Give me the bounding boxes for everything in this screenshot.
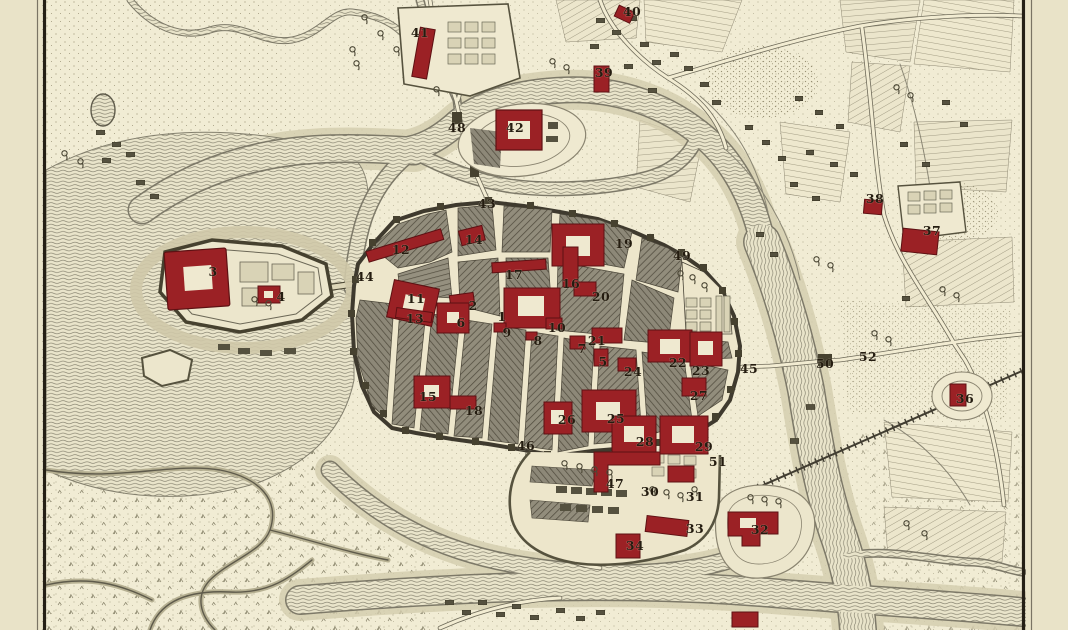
map-number-label: 22 [669, 355, 687, 370]
map-number-label: 15 [419, 389, 437, 404]
map-number-label: 26 [558, 412, 576, 427]
map-number-label: 30 [641, 484, 659, 499]
map-number-label: 29 [695, 439, 713, 454]
map-number-label: 33 [686, 521, 704, 536]
map-number-label: 38 [866, 191, 884, 206]
map-number-label: 18 [465, 403, 483, 418]
map-number-label: 39 [595, 65, 613, 80]
map-number-label: 5 [598, 354, 607, 369]
map-number-label: 19 [615, 236, 633, 251]
map-number-label: 11 [407, 291, 425, 306]
map-number-label: 10 [548, 320, 566, 335]
left-margin [0, 0, 42, 630]
map-number-label: 6 [456, 315, 465, 330]
map-number-label: 17 [505, 267, 523, 282]
historic-city-map: 1234567891011121314151617181920212223242… [0, 0, 1068, 630]
antique-map-page: 1234567891011121314151617181920212223242… [0, 0, 1068, 630]
map-number-label: 7 [577, 341, 586, 356]
map-number-label: 12 [392, 242, 410, 257]
map-number-label: 27 [690, 388, 708, 403]
map-number-label: 16 [562, 276, 580, 291]
map-number-label: 13 [406, 311, 424, 326]
map-number-label: 40 [623, 4, 641, 19]
map-number-label: 42 [506, 120, 524, 135]
map-number-label: 37 [923, 223, 941, 238]
map-number-label: 49 [673, 248, 691, 263]
map-number-label: 44 [356, 269, 374, 284]
map-number-label: 4 [276, 289, 285, 304]
map-number-label: 8 [533, 333, 542, 348]
map-number-label: 9 [502, 325, 511, 340]
map-number-label: 36 [956, 391, 974, 406]
map-number-label: 14 [465, 232, 483, 247]
map-number-label: 28 [636, 434, 654, 449]
right-margin [1026, 0, 1068, 630]
map-number-label: 25 [607, 411, 625, 426]
map-number-label: 51 [709, 454, 727, 469]
map-number-label: 47 [606, 476, 624, 491]
map-number-label: 21 [588, 333, 606, 348]
island-fort-3 [164, 248, 230, 310]
map-number-label: 23 [692, 363, 710, 378]
map-number-label: 48 [448, 120, 466, 135]
map-number-label: 45 [740, 361, 758, 376]
map-number-label: 32 [751, 522, 769, 537]
map-number-label: 43 [478, 196, 496, 211]
map-number-label: 50 [816, 356, 834, 371]
map-number-label: 2 [468, 298, 477, 313]
map-number-label: 46 [517, 438, 535, 453]
map-number-label: 20 [592, 289, 610, 304]
map-number-label: 1 [497, 309, 506, 324]
map-number-label: 52 [859, 349, 877, 364]
map-number-label: 24 [624, 364, 642, 379]
map-number-label: 3 [208, 264, 217, 279]
map-number-label: 41 [411, 25, 429, 40]
map-number-label: 31 [686, 489, 704, 504]
map-number-label: 34 [626, 538, 644, 553]
